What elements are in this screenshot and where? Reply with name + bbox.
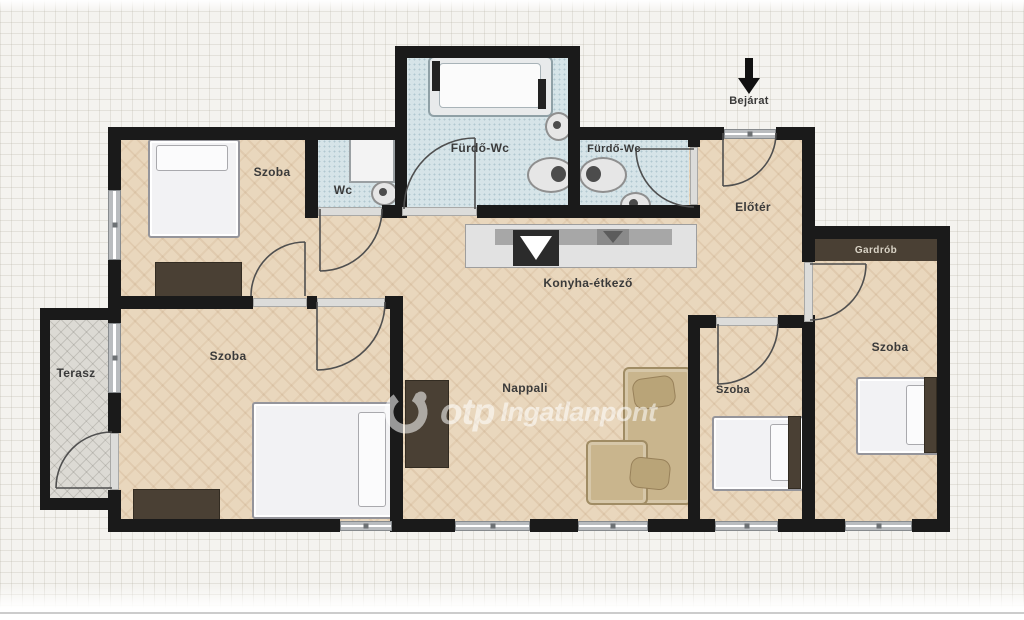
toilet-small-bath-pair	[579, 157, 627, 193]
wall	[395, 46, 407, 218]
wall	[108, 490, 121, 532]
wall	[108, 296, 253, 309]
floor-plan: Gardrób Bejárat Szoba Wc Fürdő-Wc Fürdő-…	[0, 0, 1024, 620]
tub-grip	[538, 79, 546, 109]
headboard-middle-room	[788, 416, 801, 489]
room-label-furdo-small: Fürdő-Wc	[587, 143, 641, 155]
wall	[108, 519, 340, 532]
wall	[530, 519, 578, 532]
door-opening	[804, 262, 813, 322]
wall	[395, 46, 580, 58]
basin-drain	[379, 188, 387, 196]
double-bed-top-left	[148, 139, 240, 238]
door-opening	[318, 207, 382, 216]
entrance-arrow-icon	[745, 58, 753, 80]
wall	[688, 315, 700, 532]
double-bed-bottom-left	[252, 402, 394, 519]
window	[340, 521, 392, 531]
window	[845, 521, 912, 531]
wall	[688, 205, 700, 218]
entrance-threshold	[724, 129, 776, 139]
door-opening	[402, 207, 477, 216]
wall	[305, 127, 318, 218]
entrance-arrow-head-icon	[738, 78, 760, 94]
tub-grip	[432, 61, 440, 91]
door-opening	[253, 298, 307, 307]
wall	[40, 498, 110, 510]
bottom-border-line	[0, 612, 1024, 614]
shower-wc	[349, 137, 395, 183]
room-label-szoba-bottom-left: Szoba	[210, 349, 247, 363]
toilet-bowl	[586, 166, 601, 182]
wall	[937, 226, 950, 532]
kitchen-stove	[597, 229, 629, 245]
washbasin-wc	[371, 181, 398, 206]
headboard-right-room	[924, 377, 937, 453]
room-label-terasz: Terasz	[57, 366, 96, 380]
bottom-fade	[0, 586, 1024, 620]
wall	[40, 308, 50, 510]
window	[715, 521, 778, 531]
window	[108, 190, 121, 260]
door-opening	[690, 147, 698, 205]
wall	[568, 127, 724, 140]
wall	[568, 46, 580, 218]
wall	[812, 226, 950, 239]
floor-terrace	[50, 320, 110, 500]
room-label-konyha: Konyha-étkező	[543, 276, 632, 290]
room-label-gardrob: Gardrób	[855, 245, 897, 256]
stove-burner	[603, 231, 623, 243]
window	[578, 521, 648, 531]
door-opening	[317, 298, 385, 307]
room-label-wc: Wc	[334, 183, 353, 197]
wall	[802, 322, 815, 532]
wall	[40, 308, 110, 320]
wardrobe-strip: Gardrób	[815, 239, 937, 261]
room-label-furdo-main: Fürdő-Wc	[451, 141, 509, 155]
toilet-bowl	[551, 166, 566, 182]
wall	[108, 127, 121, 190]
wall	[688, 127, 700, 147]
wall	[307, 296, 317, 309]
watermark-brand: otp	[440, 391, 495, 433]
door-opening	[716, 317, 778, 326]
wall	[802, 127, 815, 262]
tub-inner	[439, 63, 541, 108]
wall	[108, 393, 121, 433]
wall	[108, 127, 407, 140]
room-label-szoba-right: Szoba	[872, 340, 909, 354]
room-label-szoba-top-left: Szoba	[254, 165, 291, 179]
pillow	[156, 145, 228, 171]
otp-logo-icon	[380, 386, 432, 438]
window	[108, 323, 121, 393]
sofa-cushion	[628, 456, 671, 491]
kitchen-sink	[513, 230, 559, 266]
bathtub	[428, 56, 553, 117]
room-label-szoba-middle: Szoba	[716, 384, 750, 396]
wall	[477, 205, 700, 218]
window	[455, 521, 530, 531]
wall	[108, 260, 121, 323]
top-fade	[0, 0, 1024, 12]
wall	[648, 519, 715, 532]
basin-drain	[553, 121, 561, 129]
watermark-suffix: Ingatlanpont	[501, 397, 657, 428]
otp-ingatlanpont-watermark: otp Ingatlanpont	[380, 380, 660, 444]
sink-basin	[520, 236, 552, 260]
dresser-top-left	[155, 262, 242, 298]
room-label-eloter: Előtér	[735, 200, 771, 214]
door-opening	[110, 433, 119, 490]
entrance-label: Bejárat	[729, 95, 768, 107]
dresser-bottom-left	[133, 489, 220, 520]
